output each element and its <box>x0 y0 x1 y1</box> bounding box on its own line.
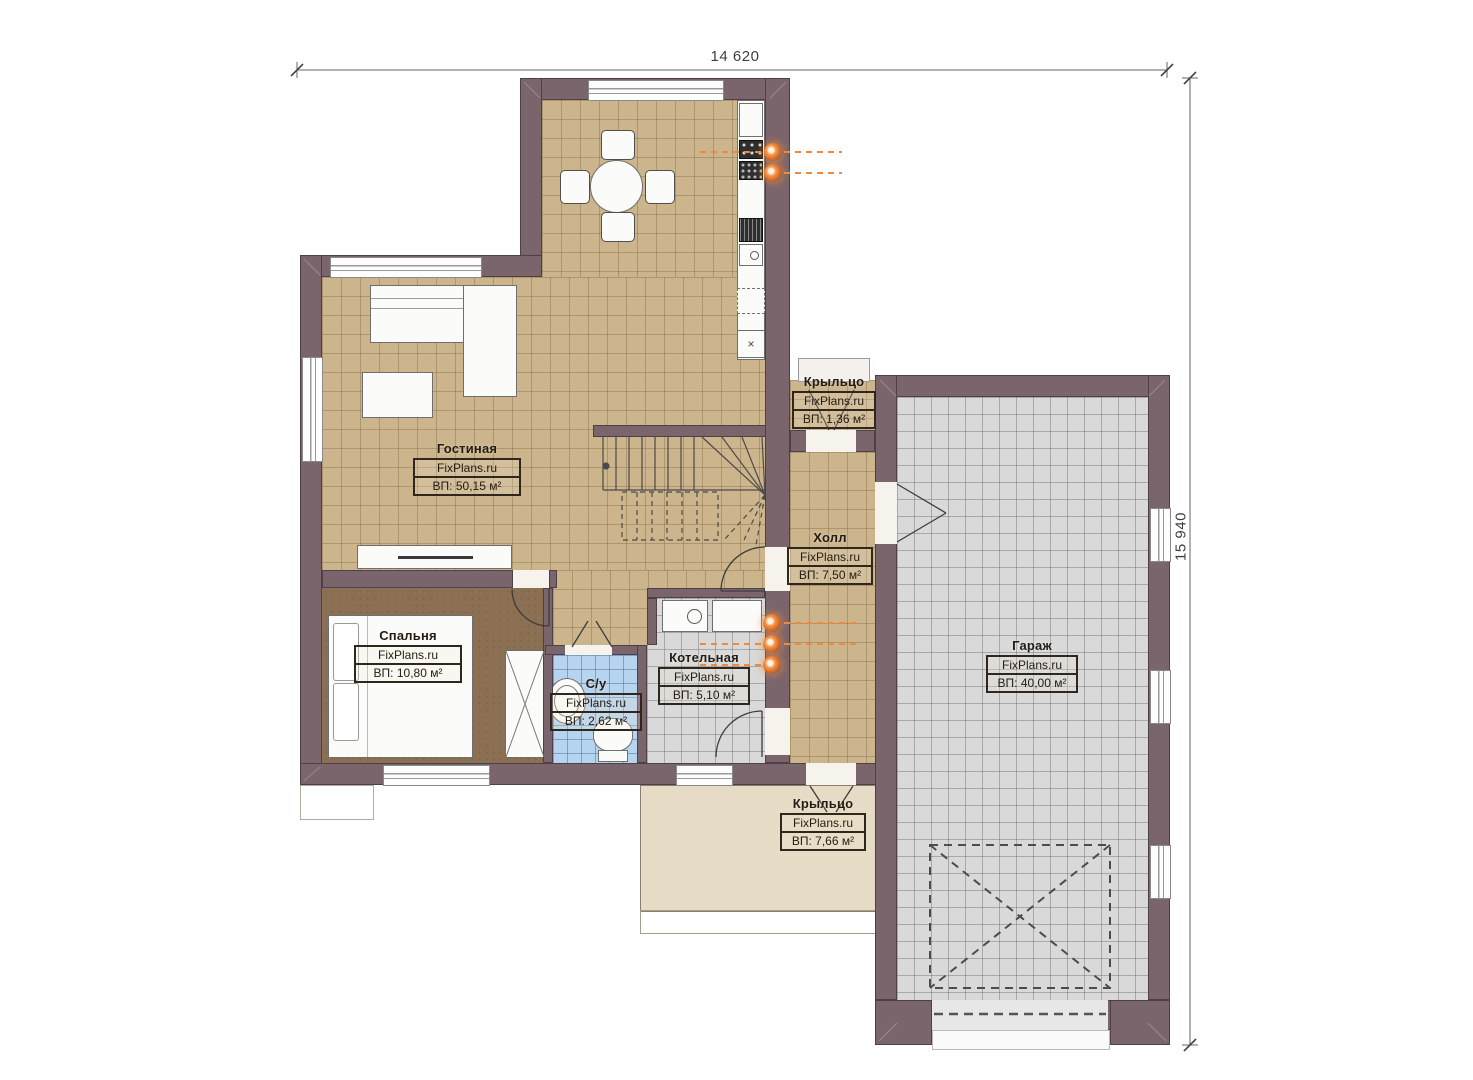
door-opening-bathroom <box>565 645 612 655</box>
room-label-porch-bottom: Крыльцо FixPlans.ru ВП: 7,66 м² <box>780 796 866 851</box>
dining-chair <box>601 212 635 242</box>
wall-boiler-left <box>647 598 657 645</box>
room-label-hall: Холл FixPlans.ru ВП: 7,50 м² <box>787 530 873 585</box>
kitchen-cabinet <box>737 288 765 314</box>
window-living-left <box>302 357 323 462</box>
faucet <box>750 251 759 260</box>
room-label-bathroom: С/у FixPlans.ru ВП: 2,62 м² <box>550 676 642 731</box>
room-label-bedroom: Спальня FixPlans.ru ВП: 10,80 м² <box>354 628 462 683</box>
room-name: Крыльцо <box>792 374 876 389</box>
room-label-boiler: Котельная FixPlans.ru ВП: 5,10 м² <box>658 650 750 705</box>
wall-kitchen-left <box>520 78 542 277</box>
porch-step <box>640 910 877 934</box>
tv-stand <box>357 545 512 569</box>
window-garage-1 <box>1150 508 1171 562</box>
radiator-icon <box>763 635 781 653</box>
oven <box>739 161 763 180</box>
fridge <box>739 103 763 137</box>
side-step <box>300 785 374 820</box>
room-brand: FixPlans.ru <box>988 657 1076 675</box>
kitchen-cabinet-x: × <box>737 330 765 358</box>
radiator-icon <box>764 143 782 161</box>
wardrobe <box>505 650 545 758</box>
tv <box>398 556 473 559</box>
room-brand: FixPlans.ru <box>782 815 864 833</box>
room-area: ВП: 10,80 м² <box>356 665 460 681</box>
coffee-table <box>362 372 433 418</box>
room-brand: FixPlans.ru <box>356 647 460 665</box>
radiator-icon <box>763 614 781 632</box>
door-opening-boiler <box>765 708 790 755</box>
dining-table <box>590 160 643 213</box>
stove <box>739 140 763 159</box>
room-brand: FixPlans.ru <box>794 393 874 411</box>
boiler <box>712 600 762 632</box>
room-area: ВП: 5,10 м² <box>660 687 748 703</box>
window-garage-3 <box>1150 845 1171 899</box>
wall-garage-corner <box>1110 1000 1170 1045</box>
room-label-living: Гостиная FixPlans.ru ВП: 50,15 м² <box>413 441 521 496</box>
dining-chair <box>601 130 635 160</box>
garage-apron <box>932 1030 1110 1050</box>
room-area: ВП: 2,62 м² <box>552 713 640 729</box>
window-kitchen <box>588 80 724 101</box>
wall-left <box>300 255 322 785</box>
floor-garage <box>897 397 1148 1000</box>
room-name: С/у <box>550 676 642 691</box>
pillow <box>333 683 359 741</box>
window-bedroom-bottom <box>383 765 490 786</box>
dimension-right-label: 15 940 <box>1173 494 1190 580</box>
dining-chair <box>560 170 590 204</box>
room-label-porch-top: Крыльцо FixPlans.ru ВП: 1,36 м² <box>792 374 876 429</box>
kitchen-sink <box>739 244 763 266</box>
door-opening-bedroom <box>513 570 549 588</box>
room-name: Гараж <box>986 638 1078 653</box>
room-label-garage: Гараж FixPlans.ru ВП: 40,00 м² <box>986 638 1078 693</box>
room-brand: FixPlans.ru <box>660 669 748 687</box>
room-area: ВП: 7,50 м² <box>789 567 871 583</box>
window-living-top <box>330 257 482 278</box>
room-area: ВП: 7,66 м² <box>782 833 864 849</box>
room-brand: FixPlans.ru <box>415 460 519 478</box>
room-name: Котельная <box>658 650 750 665</box>
boiler-dial <box>687 609 702 624</box>
window-garage-2 <box>1150 670 1171 724</box>
dimension-top-label: 14 620 <box>690 48 780 65</box>
wall-garage-left <box>875 375 897 1000</box>
window-boiler-bottom <box>676 765 733 786</box>
room-name: Спальня <box>354 628 462 643</box>
room-name: Холл <box>787 530 873 545</box>
room-area: ВП: 1,36 м² <box>794 411 874 427</box>
cooktop <box>739 218 763 242</box>
room-area: ВП: 40,00 м² <box>988 675 1076 691</box>
wall-boiler-top <box>647 588 765 598</box>
room-brand: FixPlans.ru <box>552 695 640 713</box>
wall-garage-corner <box>875 1000 932 1045</box>
floor-hall <box>790 452 875 763</box>
floor-plan: × <box>0 0 1473 1080</box>
room-name: Гостиная <box>413 441 521 456</box>
dining-chair <box>645 170 675 204</box>
wall-bedroom-top <box>322 570 513 588</box>
room-area: ВП: 50,15 м² <box>415 478 519 494</box>
radiator-icon <box>764 164 782 182</box>
room-name: Крыльцо <box>780 796 866 811</box>
garage-gate-opening <box>932 1000 1108 1030</box>
toilet-tank <box>598 750 628 762</box>
door-opening-garage <box>875 482 897 544</box>
sofa-chaise <box>463 285 517 397</box>
wall-garage-top <box>875 375 1170 397</box>
stair-wall <box>593 425 773 437</box>
room-brand: FixPlans.ru <box>789 549 871 567</box>
radiator-icon <box>763 656 781 674</box>
door-opening-porch-top <box>806 430 856 452</box>
door-opening-porch-bottom <box>806 763 856 785</box>
wall-bedroom-top-stub <box>549 570 557 588</box>
boiler-counter <box>662 600 708 632</box>
